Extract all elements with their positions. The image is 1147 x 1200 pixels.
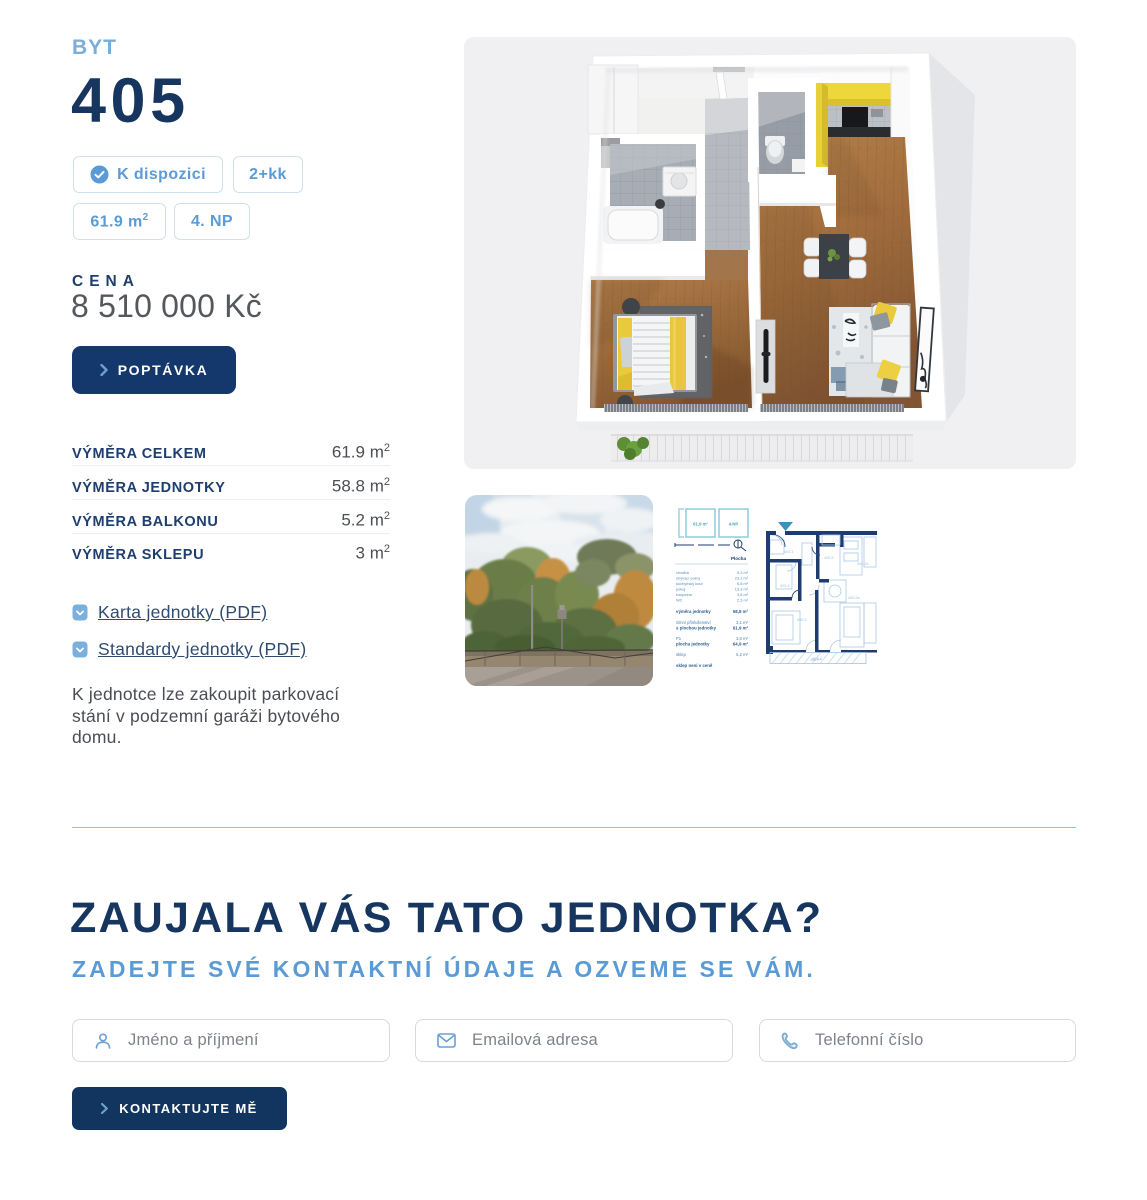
svg-text:plocha jednotky: plocha jednotky [676,642,710,647]
svg-text:2,3 m²: 2,3 m² [737,598,749,603]
svg-text:s plochou jednotky: s plochou jednotky [676,626,717,631]
svg-text:výměra jednotky: výměra jednotky [676,609,711,614]
svg-text:3,0 m²: 3,0 m² [736,636,748,641]
svg-text:405.2a: 405.2a [848,596,861,600]
svg-text:sklep není v ceně: sklep není v ceně [676,663,713,668]
svg-text:pokoj: pokoj [676,587,685,592]
svg-text:405.5: 405.5 [824,556,834,560]
svg-text:sklep: sklep [676,652,686,657]
svg-text:405.3: 405.3 [797,618,807,622]
svg-text:koupelna: koupelna [676,592,693,597]
svg-text:13,3 m²: 13,3 m² [735,587,749,592]
svg-text:58,8 m²: 58,8 m² [733,609,749,614]
svg-text:chodba: chodba [676,570,690,575]
svg-text:405.2b: 405.2b [857,562,869,566]
svg-text:zimní příslušenství: zimní příslušenství [676,620,712,625]
svg-text:405.4: 405.4 [780,584,790,588]
svg-text:6,8 m²: 6,8 m² [737,581,749,586]
svg-text:405.6: 405.6 [812,656,823,661]
svg-text:9,3 m²: 9,3 m² [737,570,749,575]
svg-text:obývací pokoj: obývací pokoj [676,576,700,581]
svg-text:61,9 m²: 61,9 m² [693,522,708,527]
svg-text:WC: WC [676,598,683,603]
svg-text:4.NP: 4.NP [729,522,739,527]
svg-text:Plocha: Plocha [731,556,747,561]
svg-text:P1: P1 [676,636,682,641]
svg-text:405.1: 405.1 [784,550,794,554]
svg-text:5,2 m²: 5,2 m² [736,652,748,657]
svg-text:61,9 m²: 61,9 m² [733,626,749,631]
svg-text:23,1 m²: 23,1 m² [735,576,749,581]
svg-text:kuchyňský kout: kuchyňský kout [676,581,704,586]
svg-text:3,1 m²: 3,1 m² [736,620,748,625]
svg-text:64,9 m²: 64,9 m² [733,642,749,647]
svg-text:3,8 m²: 3,8 m² [737,592,749,597]
